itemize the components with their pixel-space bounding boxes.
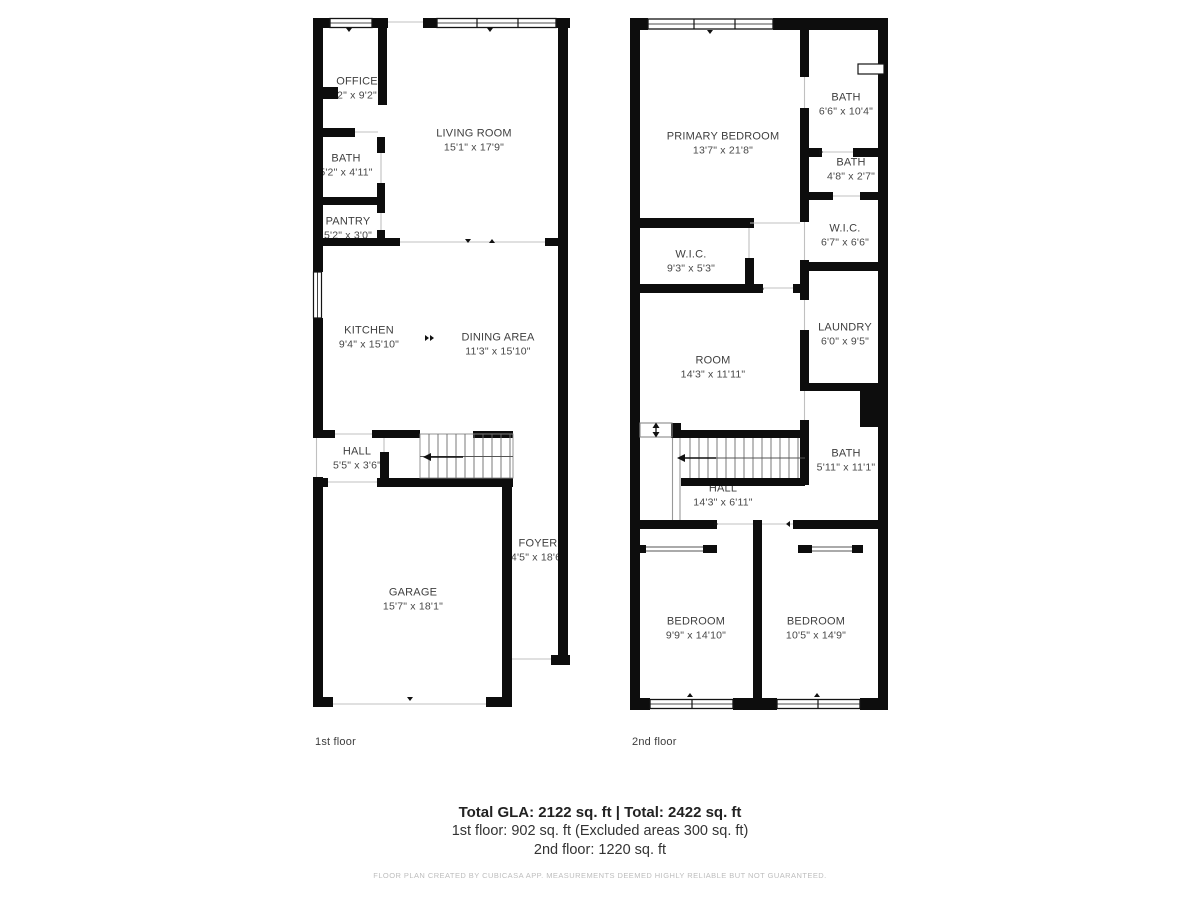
area-summary: Total GLA: 2122 sq. ft | Total: 2422 sq.… [0, 803, 1200, 880]
floorplan-page: OFFICE 2" x 9'2" LIVING ROOM 15'1" x 17'… [0, 0, 1200, 900]
room-label-bedroom-right: BEDROOM 10'5" x 14'9" [786, 616, 846, 643]
room-label-foyer: FOYER 4'5" x 18'6" [511, 538, 565, 565]
room-labels-layer: OFFICE 2" x 9'2" LIVING ROOM 15'1" x 17'… [0, 0, 1200, 900]
room-label-living-room: LIVING ROOM 15'1" x 17'9" [436, 128, 512, 155]
room-label-bath-top: BATH 6'6" x 10'4" [819, 92, 873, 119]
room-label-laundry: LAUNDRY 6'0" x 9'5" [818, 322, 872, 349]
room-label-wic-left: W.I.C. 9'3" x 5'3" [667, 249, 715, 276]
room-label-wic-right: W.I.C. 6'7" x 6'6" [821, 223, 869, 250]
room-label-hall-1f: HALL 5'5" x 3'6" [333, 446, 381, 473]
summary-floor1-area: 1st floor: 902 sq. ft (Excluded areas 30… [0, 822, 1200, 841]
room-label-bedroom-left: BEDROOM 9'9" x 14'10" [666, 616, 726, 643]
room-label-primary-bedroom: PRIMARY BEDROOM 13'7" x 21'8" [667, 131, 780, 158]
summary-floor2-area: 2nd floor: 1220 sq. ft [0, 841, 1200, 860]
floor1-caption: 1st floor [315, 736, 356, 748]
room-label-office: OFFICE 2" x 9'2" [336, 76, 378, 103]
disclaimer-text: FLOOR PLAN CREATED BY CUBICASA APP. MEAS… [0, 871, 1200, 880]
room-label-room: ROOM 14'3" x 11'11" [681, 355, 746, 382]
floor2-caption: 2nd floor [632, 736, 677, 748]
room-label-pantry: PANTRY 5'2" x 3'0" [324, 216, 372, 243]
room-label-bath-mid: BATH 5'11" x 11'1" [817, 448, 876, 475]
room-label-kitchen: KITCHEN 9'4" x 15'10" [339, 325, 399, 352]
room-label-dining-area: DINING AREA 11'3" x 15'10" [461, 332, 534, 359]
room-label-garage: GARAGE 15'7" x 18'1" [383, 587, 443, 614]
room-label-hall-2f: HALL 14'3" x 6'11" [693, 483, 752, 510]
room-label-bath-1f: BATH 5'2" x 4'11" [319, 153, 372, 180]
room-label-bath-small: BATH 4'8" x 2'7" [827, 157, 875, 184]
summary-total-gla: Total GLA: 2122 sq. ft | Total: 2422 sq.… [0, 803, 1200, 822]
